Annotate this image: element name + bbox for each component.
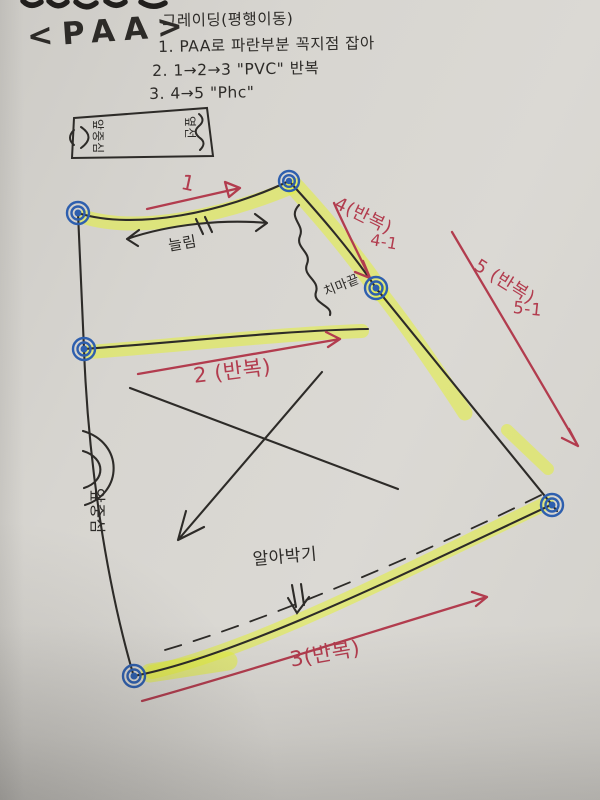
note-line-1: 1. PAA로 파란부분 꼭지점 잡아: [158, 35, 375, 57]
grading-note-heading: 그레이딩(평행이동): [162, 11, 293, 31]
swatch-side-seam-label: 옆선: [182, 116, 196, 139]
pivot-point-top-left: [67, 202, 89, 224]
side-seam-lower: [376, 288, 557, 511]
note-line-2: 2. 1→2→3 "PVC" 반복: [152, 60, 319, 81]
note-line-3: 3. 4→5 "Phc": [149, 84, 255, 104]
top-edge-cutoff-marks: [23, 1, 165, 7]
front-center-label: 앞중심: [88, 488, 106, 534]
photographed-sketch-paper: <PAA> 그레이딩(평행이동) 1. PAA로 파란부분 꼭지점 잡아 2. …: [0, 0, 600, 800]
pivot-point-bottom-left: [123, 665, 145, 687]
hem-allowance-dashed: [165, 491, 549, 650]
front-center-upper: [78, 213, 84, 349]
hem-finish-down-arrow: [288, 584, 309, 613]
swatch-front-center-label: 앞중심: [90, 119, 104, 154]
grain-arrow: [178, 372, 322, 540]
step-5-sub-label: 5-1: [512, 299, 543, 322]
skirt-pattern-outline: [78, 181, 557, 677]
pivot-point-top-right: [279, 171, 299, 191]
